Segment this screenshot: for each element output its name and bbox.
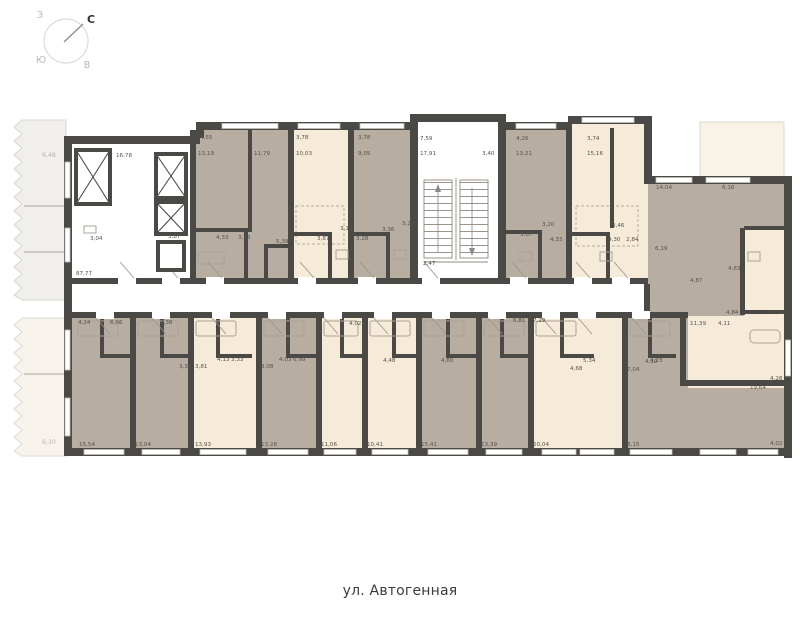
area-label: 6,66 bbox=[110, 320, 123, 326]
area-label: 15,54 bbox=[79, 442, 95, 448]
sink-icon bbox=[84, 226, 96, 233]
area-label: 5,34 bbox=[583, 358, 596, 364]
area-label: 4,26 bbox=[516, 136, 529, 142]
area-label: 4,30 bbox=[608, 237, 621, 243]
area-label: 3,46 bbox=[612, 223, 625, 229]
area-label: 14,04 bbox=[656, 185, 672, 191]
compass-needle-icon bbox=[64, 24, 83, 42]
elevator-shafts bbox=[76, 150, 186, 270]
area-label: 3,81 bbox=[195, 364, 208, 370]
area-label: 19,64 bbox=[750, 385, 766, 391]
area-label: 3,38 bbox=[160, 320, 173, 326]
area-label: 13,93 bbox=[195, 442, 211, 448]
area-label: 6,48 bbox=[42, 152, 56, 159]
area-label: 3,20 bbox=[542, 222, 555, 228]
area-label: 3,30 bbox=[179, 364, 192, 370]
area-label: 13,39 bbox=[481, 442, 497, 448]
area-label: 15,16 bbox=[587, 151, 603, 157]
area-label: 3,04 bbox=[90, 236, 103, 242]
area-label: 4,24 bbox=[78, 320, 91, 326]
area-label: 4,48 bbox=[383, 358, 396, 364]
area-label: 6,19 bbox=[655, 246, 668, 252]
area-label: 9,05 bbox=[358, 151, 371, 157]
area-label: 7,59 bbox=[420, 136, 433, 142]
area-label: 4,87 bbox=[690, 278, 703, 284]
area-label: 6,81 bbox=[513, 318, 526, 324]
compass-east: В bbox=[84, 60, 91, 71]
area-label: 4,02 bbox=[770, 441, 782, 447]
area-label: 7,04 bbox=[627, 367, 640, 373]
area-label: 3,36 bbox=[382, 227, 395, 233]
area-label: 10,41 bbox=[367, 442, 383, 448]
elevator-icon bbox=[156, 202, 186, 234]
area-label: 15,41 bbox=[421, 442, 437, 448]
area-label: 6,16 bbox=[722, 185, 735, 191]
area-label: 13,19 bbox=[198, 151, 214, 157]
area-label: 4,33 bbox=[550, 237, 563, 243]
area-label: 3,20 bbox=[402, 221, 415, 227]
area-label: 4,03 bbox=[279, 357, 292, 363]
area-label: 3,87 bbox=[168, 234, 181, 240]
area-label: 13,28 bbox=[261, 442, 277, 448]
area-label: 3,78 bbox=[358, 135, 371, 141]
area-label: 5,39 bbox=[276, 239, 289, 245]
terrace-outline bbox=[700, 122, 784, 178]
area-label: 6,99 bbox=[293, 357, 306, 363]
room-rect bbox=[744, 226, 788, 388]
area-label: 4,11 bbox=[718, 321, 731, 327]
area-label: 4,55 bbox=[200, 135, 213, 141]
area-label: 4,02 bbox=[349, 321, 361, 327]
elevator-icon bbox=[156, 154, 186, 198]
area-label: 4,13 bbox=[217, 357, 230, 363]
area-label: 3,40 bbox=[482, 151, 495, 157]
area-label: 4,19 bbox=[645, 359, 658, 365]
area-label: 3,74 bbox=[587, 136, 600, 142]
area-label: 10,03 bbox=[296, 151, 312, 157]
room-rect bbox=[292, 126, 352, 280]
area-label: 20,04 bbox=[533, 442, 549, 448]
shaft-box bbox=[158, 242, 184, 270]
balcony-top bbox=[14, 120, 66, 300]
compass-north: С bbox=[87, 13, 95, 26]
area-label: 3,43 bbox=[238, 235, 251, 241]
area-label: 13,21 bbox=[516, 151, 532, 157]
staircase bbox=[424, 178, 488, 262]
area-label: 13,04 bbox=[135, 442, 151, 448]
compass-south: Ю bbox=[36, 55, 46, 66]
area-label: 3,78 bbox=[296, 135, 309, 141]
compass-west: З bbox=[37, 10, 43, 21]
area-label: 4,68 bbox=[570, 366, 583, 372]
area-label: 4,33 bbox=[216, 235, 229, 241]
area-label: 2,84 bbox=[626, 237, 639, 243]
area-label: 16,78 bbox=[116, 153, 132, 159]
area-label: 8,15 bbox=[627, 442, 640, 448]
area-label: 6,30 bbox=[42, 439, 56, 446]
area-label: 4,60 bbox=[441, 358, 454, 364]
area-label: 3,33 bbox=[231, 357, 244, 363]
floor-plan-page: З С Ю В bbox=[0, 0, 800, 626]
street-label: ул. Автогенная bbox=[0, 583, 800, 599]
area-label: 2,47 bbox=[423, 261, 436, 267]
area-label: 9,82 bbox=[772, 310, 784, 316]
area-label: 4,84 bbox=[726, 310, 739, 316]
area-label: 4,63 bbox=[728, 266, 741, 272]
area-label: 11,39 bbox=[690, 321, 706, 327]
area-label: 11,79 bbox=[254, 151, 270, 157]
area-label: 3,87 bbox=[317, 236, 330, 242]
area-label: 7,29 bbox=[533, 318, 546, 324]
area-label: 3,19 bbox=[340, 226, 353, 232]
area-label: 11,06 bbox=[321, 442, 337, 448]
area-label: 87,77 bbox=[76, 271, 92, 277]
area-label: 3,67 bbox=[520, 232, 533, 238]
compass-rose: З С Ю В bbox=[36, 10, 95, 71]
room-rect bbox=[352, 126, 414, 280]
area-label: 3,08 bbox=[261, 364, 274, 370]
area-label: 3,28 bbox=[356, 236, 369, 242]
elevator-icon bbox=[76, 150, 110, 204]
balcony-bottom bbox=[14, 318, 66, 456]
area-label: 17,91 bbox=[420, 151, 436, 157]
area-label: 4,28 bbox=[770, 376, 783, 382]
floor-plan-canvas: З С Ю В bbox=[0, 0, 800, 626]
